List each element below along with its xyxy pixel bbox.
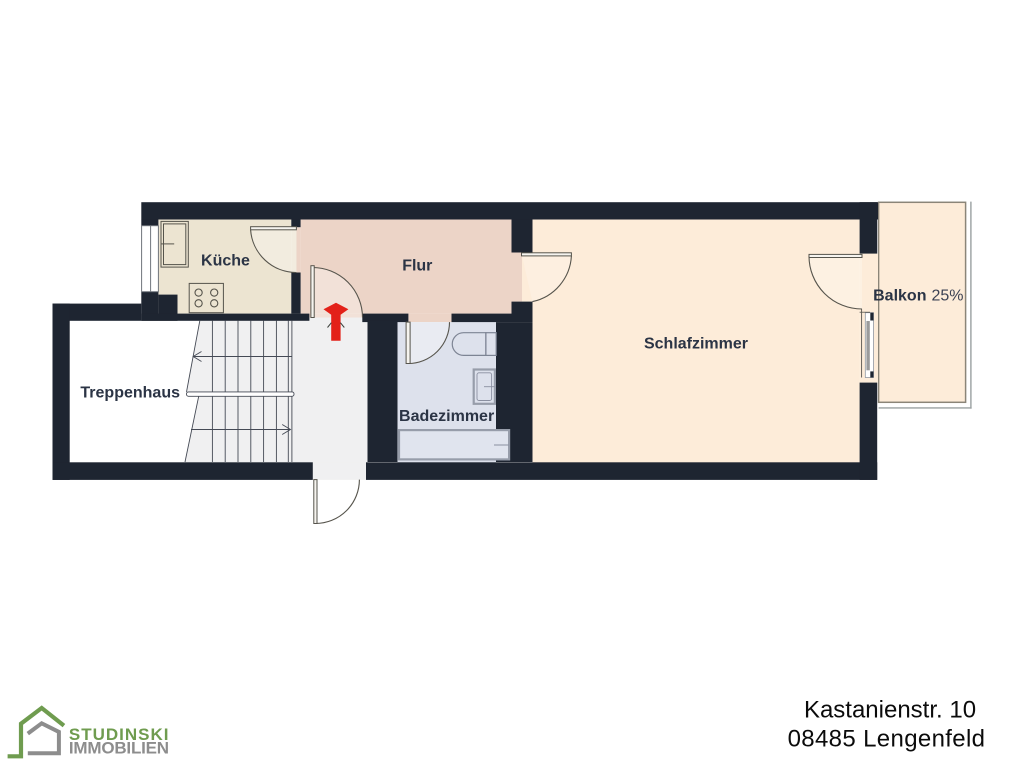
svg-text:Flur: Flur bbox=[402, 257, 432, 274]
svg-text:Treppenhaus: Treppenhaus bbox=[80, 384, 180, 401]
svg-text:Badezimmer: Badezimmer bbox=[399, 408, 494, 425]
svg-text:Küche: Küche bbox=[201, 253, 250, 270]
svg-text:Kastanienstr. 10: Kastanienstr. 10 bbox=[804, 697, 976, 724]
svg-text:Schlafzimmer: Schlafzimmer bbox=[644, 335, 748, 352]
svg-text:Balkon25%: Balkon25% bbox=[873, 287, 963, 304]
svg-text:08485 Lengenfeld: 08485 Lengenfeld bbox=[788, 726, 986, 753]
svg-text:IMMOBILIEN: IMMOBILIEN bbox=[69, 739, 169, 758]
